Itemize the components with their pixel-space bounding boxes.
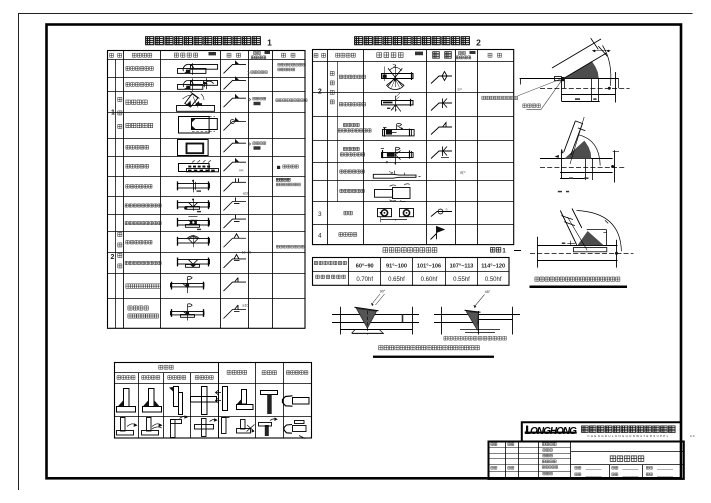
svg-text:0.50hf: 0.50hf — [485, 277, 502, 283]
svg-text:≥=: ≥= — [458, 87, 463, 92]
svg-text:n: n — [446, 208, 448, 212]
svg-text:1: 1 — [267, 38, 272, 48]
svg-text:2: 2 — [476, 38, 481, 48]
svg-text:3: 3 — [318, 211, 322, 218]
svg-text:114°~120: 114°~120 — [481, 264, 505, 270]
svg-text:2: 2 — [318, 89, 322, 96]
svg-text:n×l: n×l — [239, 169, 244, 173]
svg-text:107°~113: 107°~113 — [450, 264, 474, 270]
svg-text:0.65hf: 0.65hf — [388, 277, 405, 283]
svg-text:≥10: ≥10 — [242, 304, 248, 308]
svg-text:91°~100: 91°~100 — [386, 264, 407, 270]
svg-text:E D: E D — [690, 434, 695, 438]
svg-text:4: 4 — [318, 233, 322, 240]
svg-text:45°: 45° — [485, 290, 491, 294]
svg-text:0.60hf: 0.60hf — [421, 277, 438, 283]
svg-text:C H E N G D U L O N G H O N: C H E N G D U L O N G H O N W A T E R S … — [587, 434, 668, 438]
svg-text:101°~106: 101°~106 — [417, 264, 441, 270]
svg-text:10~20: 10~20 — [242, 251, 252, 255]
svg-text:0.70hf: 0.70hf — [356, 277, 373, 283]
svg-text:≤10: ≤10 — [243, 192, 249, 196]
svg-text:0.55hf: 0.55hf — [453, 277, 470, 283]
svg-text:≤(=: ≤(= — [460, 171, 466, 175]
svg-text:60°~90: 60°~90 — [356, 264, 374, 270]
svg-text:90°: 90° — [380, 290, 386, 294]
svg-text:1: 1 — [111, 110, 115, 117]
svg-text:LONGHONG: LONGHONG — [525, 426, 577, 437]
svg-text:2: 2 — [111, 254, 115, 261]
